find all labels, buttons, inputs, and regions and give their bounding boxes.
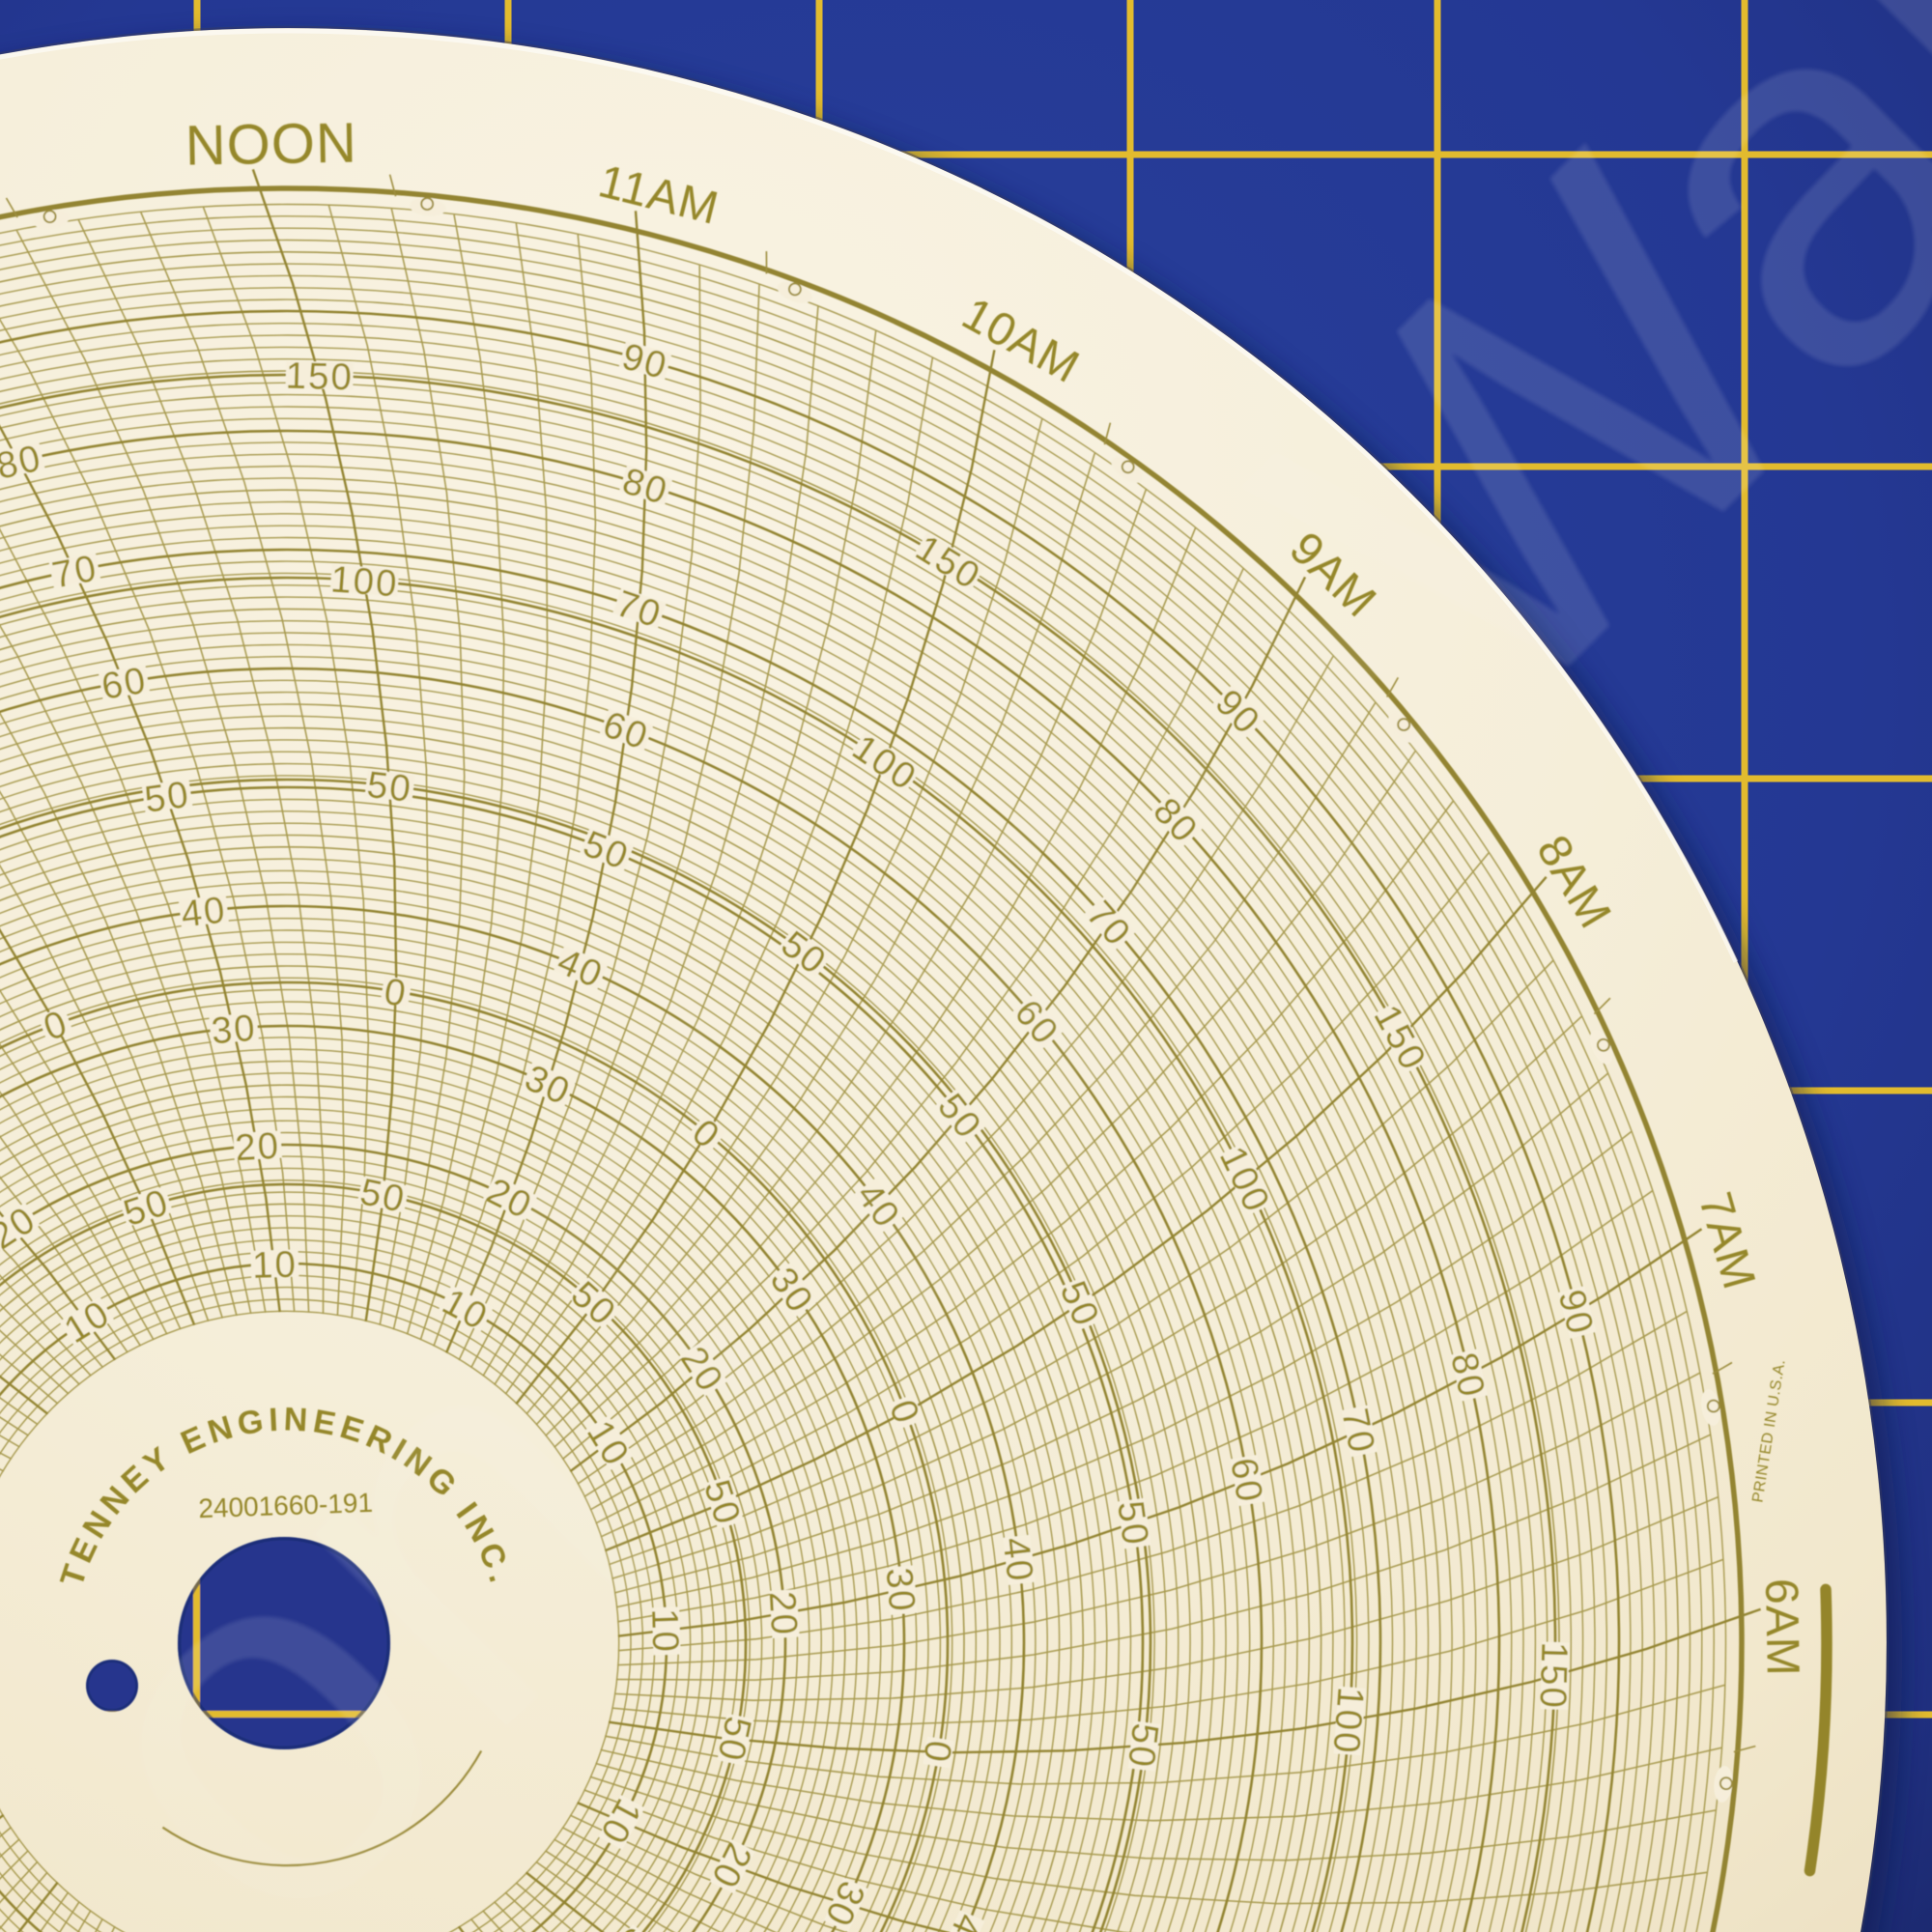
svg-text:NOON: NOON (185, 112, 357, 178)
svg-text:70: 70 (49, 547, 101, 596)
svg-text:20: 20 (234, 1125, 281, 1170)
svg-text:60: 60 (1222, 1455, 1270, 1506)
svg-text:50: 50 (365, 764, 415, 810)
svg-text:40: 40 (995, 1535, 1041, 1584)
svg-text:40: 40 (179, 889, 228, 935)
svg-text:30: 30 (878, 1566, 923, 1614)
svg-text:50: 50 (142, 774, 192, 821)
svg-text:100: 100 (1325, 1686, 1372, 1756)
svg-text:50: 50 (1120, 1721, 1166, 1772)
svg-text:150: 150 (1532, 1641, 1576, 1710)
svg-text:70: 70 (1333, 1406, 1382, 1458)
svg-text:60: 60 (99, 660, 150, 708)
svg-text:50: 50 (1109, 1498, 1156, 1548)
svg-text:6AM: 6AM (1755, 1578, 1808, 1678)
svg-text:100: 100 (329, 558, 400, 605)
svg-text:30: 30 (210, 1007, 258, 1052)
svg-text:150: 150 (285, 355, 354, 398)
